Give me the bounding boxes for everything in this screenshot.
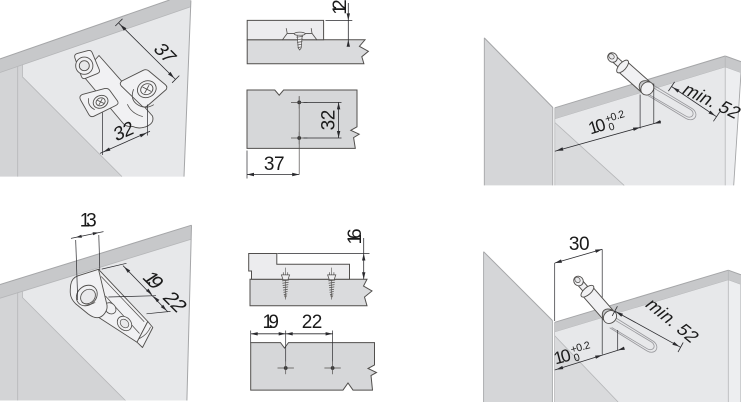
svg-text:32: 32: [319, 110, 340, 130]
svg-text:22: 22: [302, 312, 322, 333]
svg-text:12: 12: [330, 0, 351, 15]
svg-text:19: 19: [263, 312, 279, 333]
svg-text:16: 16: [345, 229, 366, 245]
svg-text:30: 30: [569, 234, 589, 255]
svg-text:37: 37: [264, 154, 284, 175]
svg-text:13: 13: [80, 211, 97, 232]
